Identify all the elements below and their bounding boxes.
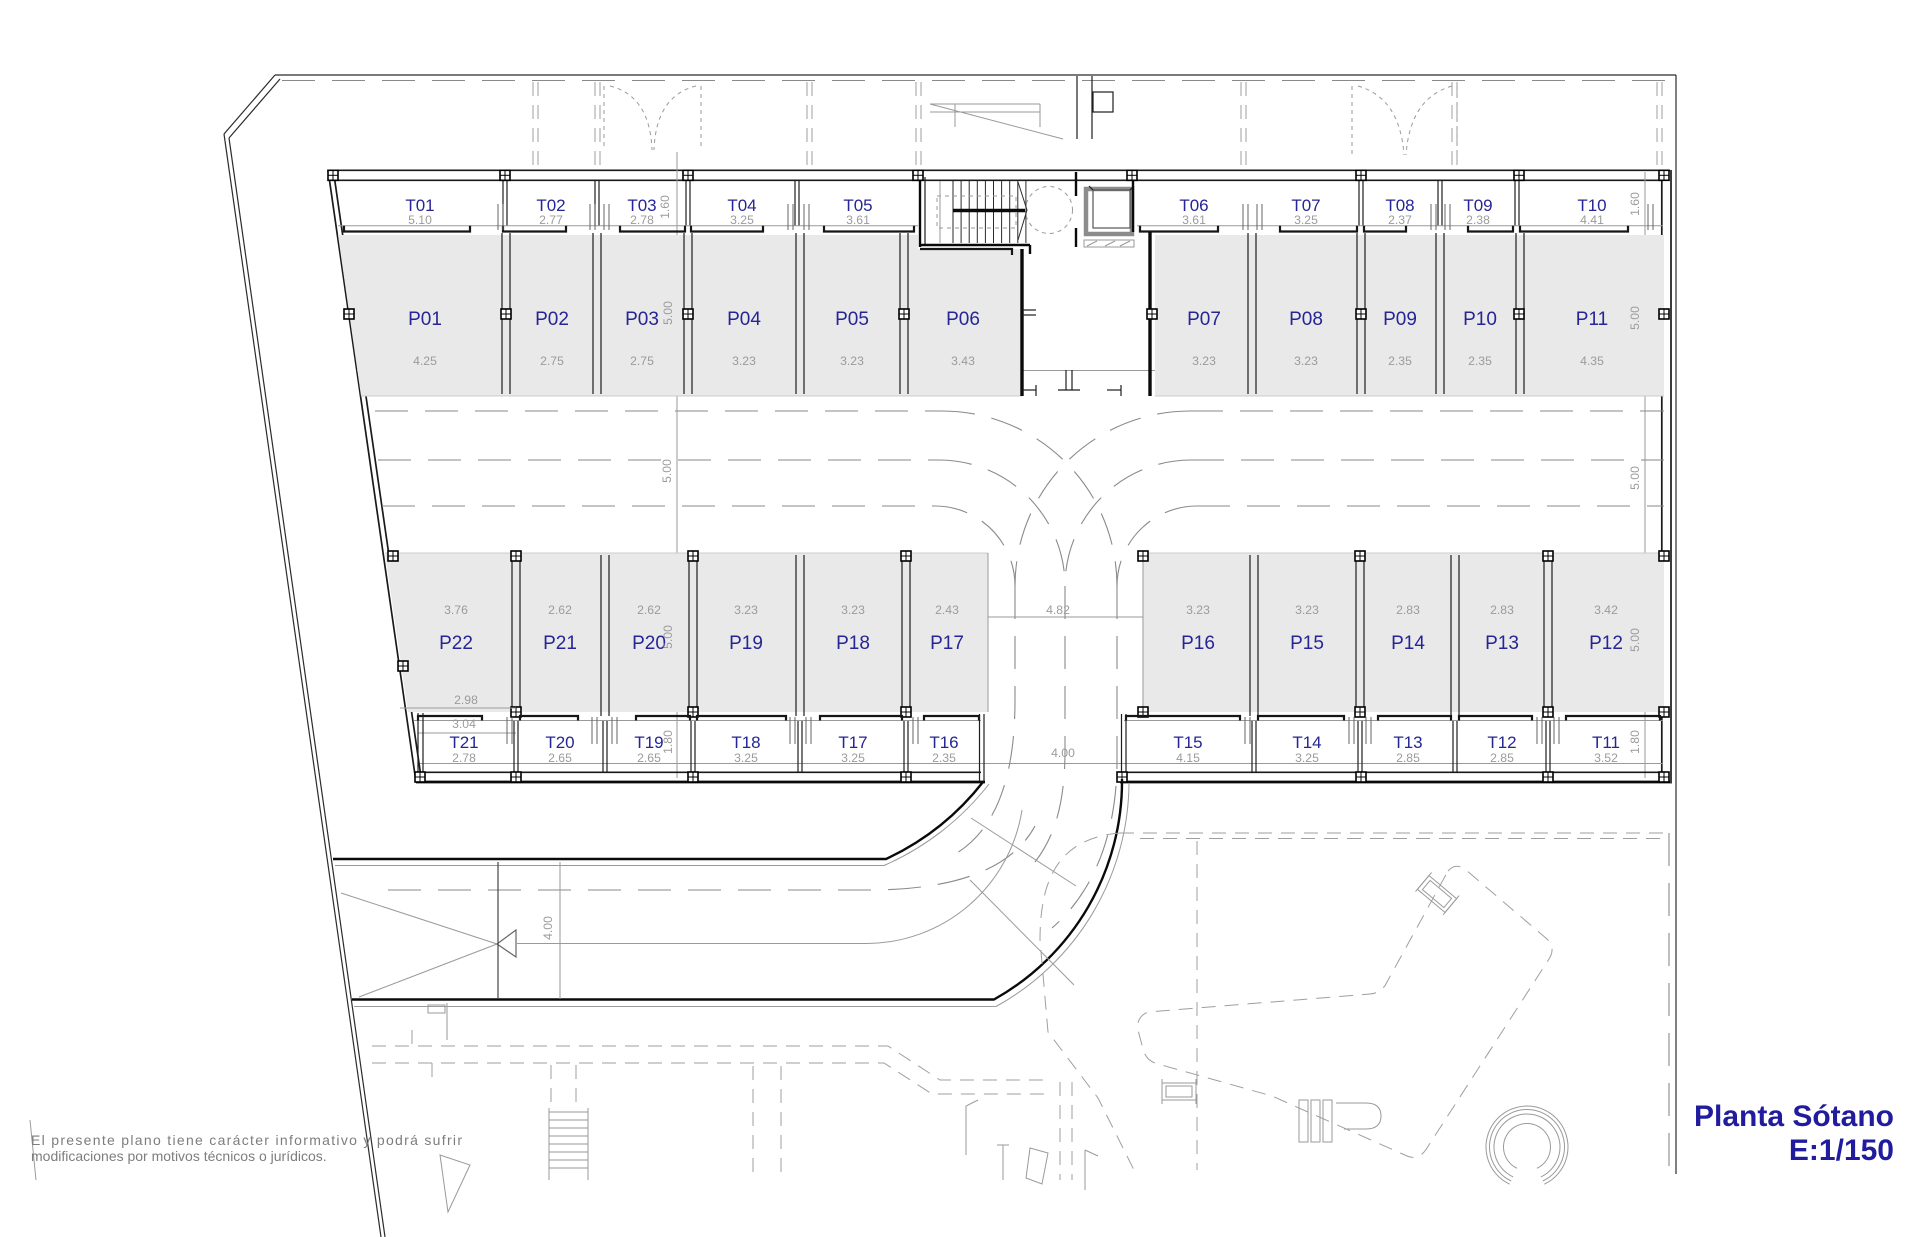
svg-text:2.78: 2.78 <box>630 213 654 227</box>
svg-text:T16: T16 <box>929 733 958 752</box>
svg-text:5.00: 5.00 <box>1628 466 1642 490</box>
svg-text:3.61: 3.61 <box>846 213 870 227</box>
svg-text:2.78: 2.78 <box>452 751 476 765</box>
svg-text:T17: T17 <box>838 733 867 752</box>
svg-text:T15: T15 <box>1173 733 1202 752</box>
svg-text:T13: T13 <box>1393 733 1422 752</box>
svg-text:E:1/150: E:1/150 <box>1789 1134 1894 1167</box>
svg-text:2.38: 2.38 <box>1466 213 1490 227</box>
svg-text:P06: P06 <box>946 309 980 330</box>
svg-text:1.60: 1.60 <box>1628 192 1642 216</box>
svg-text:5.00: 5.00 <box>1628 628 1642 652</box>
svg-text:3.25: 3.25 <box>1294 213 1318 227</box>
svg-text:3.25: 3.25 <box>734 751 758 765</box>
svg-text:P01: P01 <box>408 309 442 330</box>
svg-text:P16: P16 <box>1181 633 1215 654</box>
svg-text:P05: P05 <box>835 309 869 330</box>
svg-text:P08: P08 <box>1289 309 1323 330</box>
svg-text:2.85: 2.85 <box>1490 751 1514 765</box>
svg-text:2.65: 2.65 <box>548 751 572 765</box>
svg-text:2.35: 2.35 <box>1468 354 1492 368</box>
svg-text:P02: P02 <box>535 309 569 330</box>
svg-text:3.23: 3.23 <box>732 354 756 368</box>
svg-text:1.80: 1.80 <box>1628 730 1642 754</box>
svg-text:2.75: 2.75 <box>630 354 654 368</box>
svg-text:3.76: 3.76 <box>444 603 468 617</box>
svg-text:4.82: 4.82 <box>1046 603 1070 617</box>
svg-text:2.37: 2.37 <box>1388 213 1412 227</box>
svg-text:3.23: 3.23 <box>1192 354 1216 368</box>
svg-text:3.23: 3.23 <box>1186 603 1210 617</box>
svg-text:3.23: 3.23 <box>841 603 865 617</box>
svg-text:3.43: 3.43 <box>951 354 975 368</box>
svg-text:3.23: 3.23 <box>1295 603 1319 617</box>
svg-text:3.52: 3.52 <box>1594 751 1618 765</box>
svg-text:4.41: 4.41 <box>1580 213 1604 227</box>
svg-text:P10: P10 <box>1463 309 1497 330</box>
svg-text:5.10: 5.10 <box>408 213 432 227</box>
svg-text:P04: P04 <box>727 309 761 330</box>
svg-text:T14: T14 <box>1292 733 1321 752</box>
svg-text:3.04: 3.04 <box>452 717 476 731</box>
svg-text:3.25: 3.25 <box>841 751 865 765</box>
svg-text:3.61: 3.61 <box>1182 213 1206 227</box>
svg-text:1.60: 1.60 <box>658 195 672 219</box>
svg-text:4.15: 4.15 <box>1176 751 1200 765</box>
svg-text:4.35: 4.35 <box>1580 354 1604 368</box>
svg-text:3.23: 3.23 <box>1294 354 1318 368</box>
svg-text:modificaciones por motivos téc: modificaciones por motivos técnicos o ju… <box>31 1148 327 1164</box>
svg-text:P12: P12 <box>1589 633 1623 654</box>
svg-text:5.00: 5.00 <box>1628 306 1642 330</box>
svg-text:2.35: 2.35 <box>932 751 956 765</box>
svg-text:P17: P17 <box>930 633 964 654</box>
svg-text:2.43: 2.43 <box>935 603 959 617</box>
svg-text:3.23: 3.23 <box>840 354 864 368</box>
svg-text:2.35: 2.35 <box>1388 354 1412 368</box>
svg-text:P18: P18 <box>836 633 870 654</box>
svg-text:2.85: 2.85 <box>1396 751 1420 765</box>
svg-text:2.98: 2.98 <box>454 693 478 707</box>
svg-text:2.65: 2.65 <box>637 751 661 765</box>
svg-text:P15: P15 <box>1290 633 1324 654</box>
svg-text:P14: P14 <box>1391 633 1425 654</box>
svg-text:T12: T12 <box>1487 733 1516 752</box>
svg-text:3.23: 3.23 <box>734 603 758 617</box>
svg-text:2.83: 2.83 <box>1396 603 1420 617</box>
svg-text:4.00: 4.00 <box>1051 746 1075 760</box>
svg-text:T20: T20 <box>545 733 574 752</box>
svg-text:P09: P09 <box>1383 309 1417 330</box>
svg-text:T11: T11 <box>1592 733 1620 752</box>
svg-text:P22: P22 <box>439 633 473 654</box>
svg-text:P21: P21 <box>543 633 577 654</box>
svg-text:T18: T18 <box>731 733 760 752</box>
svg-text:P11: P11 <box>1576 309 1608 330</box>
svg-text:3.25: 3.25 <box>1295 751 1319 765</box>
svg-text:T21: T21 <box>449 733 478 752</box>
svg-text:2.77: 2.77 <box>539 213 563 227</box>
svg-text:5.00: 5.00 <box>660 459 674 483</box>
svg-text:4.25: 4.25 <box>413 354 437 368</box>
svg-text:El presente plano tiene caráct: El presente plano tiene carácter informa… <box>31 1132 462 1148</box>
svg-text:2.62: 2.62 <box>637 603 661 617</box>
svg-text:P07: P07 <box>1187 309 1221 330</box>
svg-text:1.80: 1.80 <box>661 730 675 754</box>
svg-text:4.00: 4.00 <box>541 916 555 940</box>
svg-text:5.00: 5.00 <box>661 301 675 325</box>
svg-text:Planta Sótano: Planta Sótano <box>1694 1100 1894 1133</box>
svg-text:5.00: 5.00 <box>661 625 675 649</box>
svg-text:P13: P13 <box>1485 633 1519 654</box>
svg-text:2.62: 2.62 <box>548 603 572 617</box>
svg-text:P03: P03 <box>625 309 659 330</box>
svg-text:2.75: 2.75 <box>540 354 564 368</box>
svg-text:T19: T19 <box>634 733 663 752</box>
svg-text:3.25: 3.25 <box>730 213 754 227</box>
svg-text:3.42: 3.42 <box>1594 603 1618 617</box>
svg-text:2.83: 2.83 <box>1490 603 1514 617</box>
svg-text:P19: P19 <box>729 633 763 654</box>
